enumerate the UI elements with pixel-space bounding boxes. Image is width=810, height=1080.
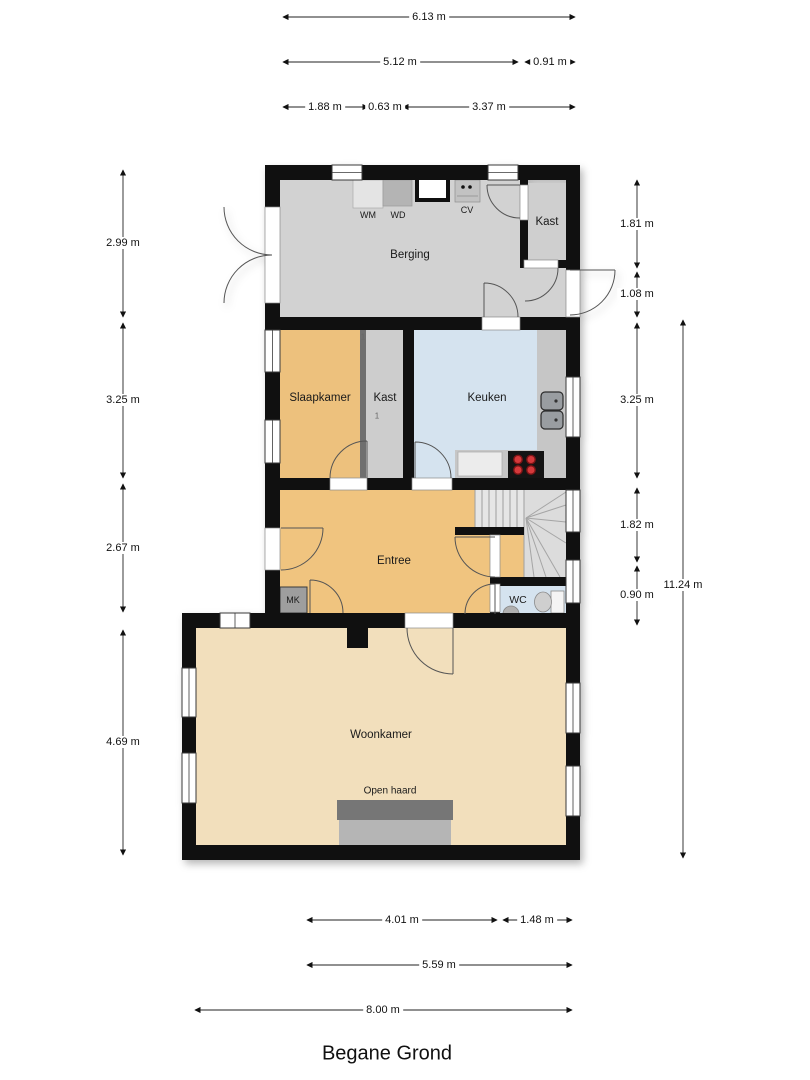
dim-right-182: 1.82 m xyxy=(617,519,657,531)
label-open-haard: Open haard xyxy=(364,786,417,797)
dim-right-1124: 11.24 m xyxy=(661,579,706,591)
dim-bottom-148: 1.48 m xyxy=(517,914,557,926)
dim-right-090: 0.90 m xyxy=(617,589,657,601)
building xyxy=(182,165,615,860)
dim-left-299: 2.99 m xyxy=(103,237,143,249)
dim-left-469: 4.69 m xyxy=(103,736,143,748)
room-label-entree: Entree xyxy=(377,555,411,567)
entree-floor xyxy=(280,490,493,613)
label-cv: CV xyxy=(461,205,474,215)
dim-bottom-559: 5.59 m xyxy=(419,959,459,971)
label-wm: WM xyxy=(360,210,376,220)
room-label-berging: Berging xyxy=(390,249,430,261)
vestibule-floor xyxy=(520,268,566,317)
dim-right-108: 1.08 m xyxy=(617,288,657,300)
fireplace xyxy=(337,800,453,848)
washing-machine xyxy=(353,180,383,208)
cv-unit xyxy=(455,180,480,202)
stove xyxy=(508,451,544,478)
dishwasher xyxy=(458,452,502,476)
hall-floor xyxy=(500,535,524,577)
floorplan-canvas: 6.13 m 5.12 m 0.91 m 1.88 m 0.63 m 3.37 … xyxy=(0,0,810,1080)
dryer xyxy=(383,180,412,206)
closet-partition xyxy=(360,330,366,478)
slaapkamer-floor xyxy=(280,330,360,478)
room-label-kast: Kast xyxy=(373,392,396,404)
dim-left-267: 2.67 m xyxy=(103,542,143,554)
door-mark-b: 1 xyxy=(375,412,379,421)
room-label-woonkamer: Woonkamer xyxy=(350,729,412,741)
dim-top-063: 0.63 m xyxy=(365,101,405,113)
dim-bottom-401: 4.01 m xyxy=(382,914,422,926)
room-label-slaapkamer: Slaapkamer xyxy=(289,392,350,404)
counter-right xyxy=(537,330,566,450)
room-label-wc: WC xyxy=(509,594,527,606)
dim-bottom-800: 8.00 m xyxy=(363,1004,403,1016)
dim-top-512: 5.12 m xyxy=(380,56,420,68)
dim-right-325: 3.25 m xyxy=(617,394,657,406)
dim-top-613: 6.13 m xyxy=(409,11,449,23)
dim-right-181: 1.81 m xyxy=(617,218,657,230)
label-wd: WD xyxy=(391,210,406,220)
kast-floor xyxy=(366,330,403,478)
dim-top-337: 3.37 m xyxy=(469,101,509,113)
dim-left-325: 3.25 m xyxy=(103,394,143,406)
room-label-kast-boven: Kast xyxy=(535,216,558,228)
page-title: Begane Grond xyxy=(322,1043,452,1066)
room-label-keuken: Keuken xyxy=(467,392,506,404)
room-label-mk: MK xyxy=(286,595,300,605)
door-mark-a: 1 xyxy=(361,333,365,342)
duct-box xyxy=(417,178,448,200)
kitchen-sink xyxy=(541,392,563,429)
dim-top-188: 1.88 m xyxy=(305,101,345,113)
dim-top-091: 0.91 m xyxy=(530,56,570,68)
